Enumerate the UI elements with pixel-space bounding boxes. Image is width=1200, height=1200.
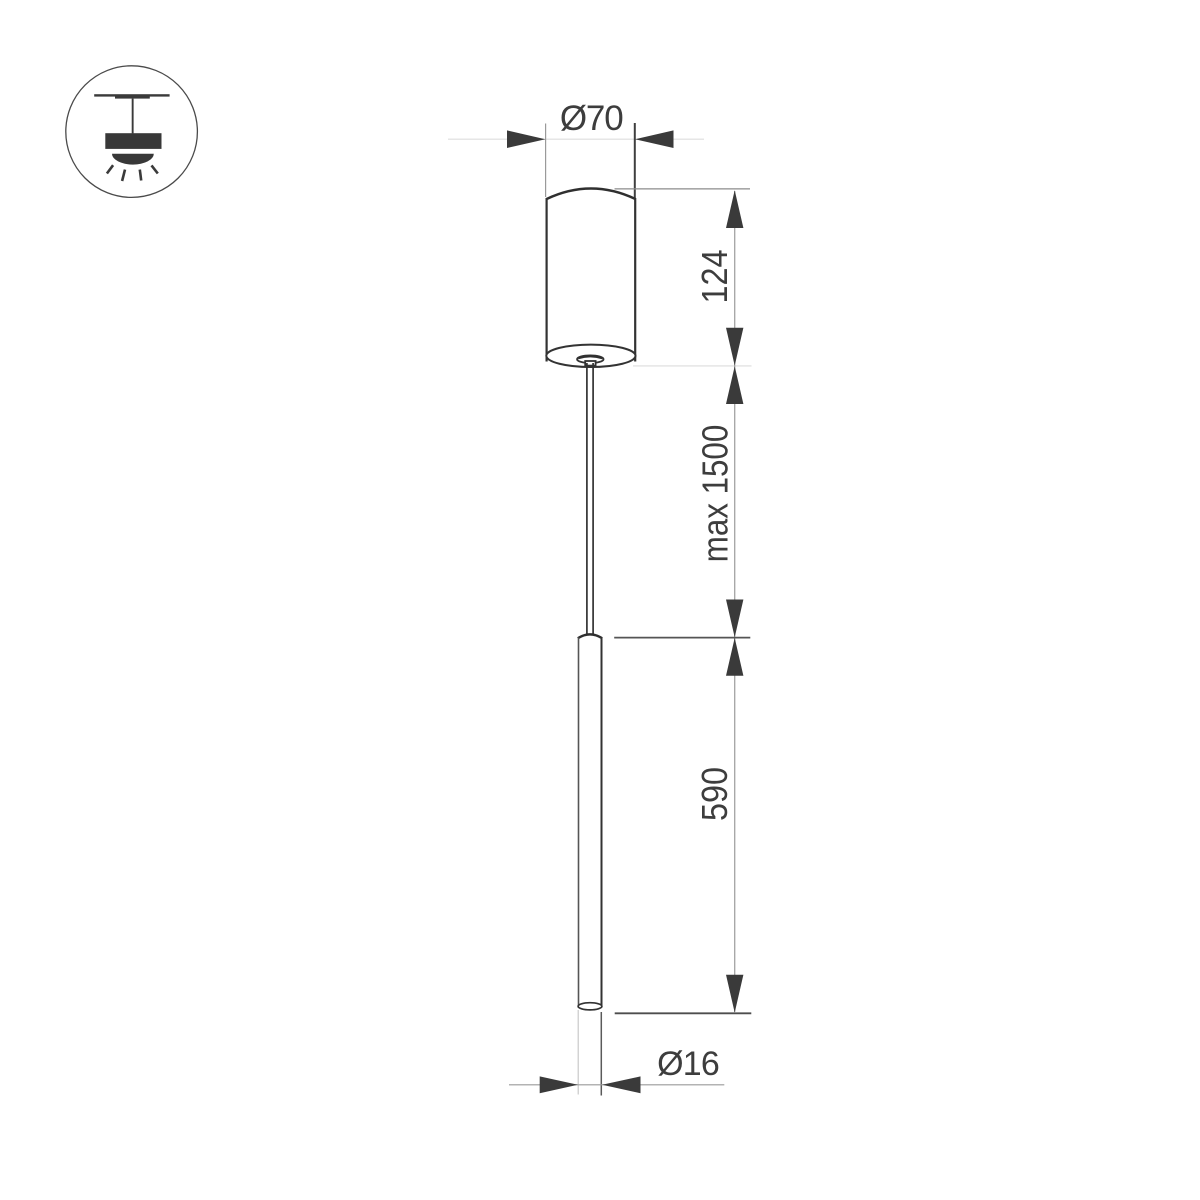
svg-text:590: 590 (695, 767, 735, 821)
svg-text:max 1500: max 1500 (695, 425, 736, 563)
svg-text:124: 124 (695, 249, 735, 303)
svg-text:Ø16: Ø16 (657, 1045, 719, 1083)
svg-text:Ø70: Ø70 (560, 99, 623, 138)
